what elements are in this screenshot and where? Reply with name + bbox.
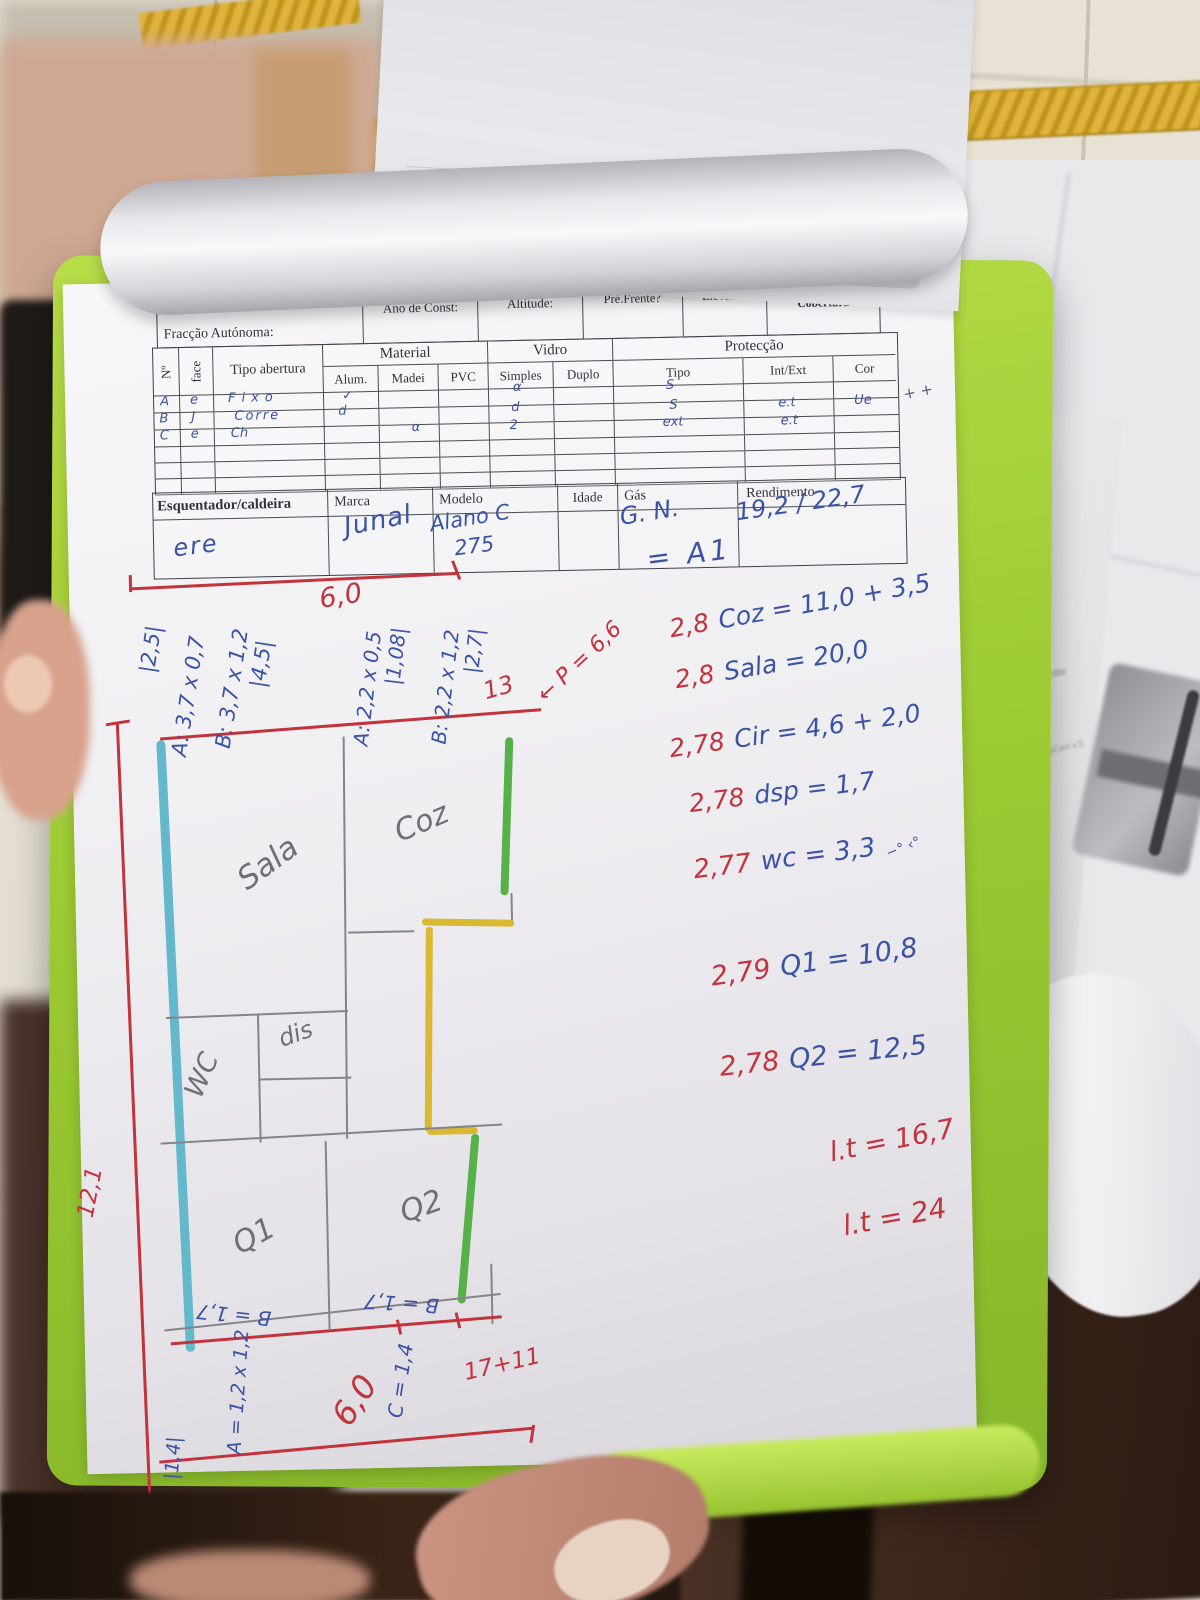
col-duplo: Duplo (553, 361, 614, 388)
room-label-coz: Coz (389, 796, 453, 850)
calc-line: 2,78Cir = 4,6 + 2,0 (667, 698, 922, 763)
pencil-line-dis-bottom (259, 1077, 351, 1081)
room-label-sala: Sala (231, 829, 306, 897)
plan-right-wall-green-upper (500, 737, 513, 895)
dim-note: A: 3,7 x 0,7 (167, 635, 209, 758)
pencil-line-coz-notch (348, 930, 414, 933)
calc-line: 2,78Q2 = 12,5 (718, 1030, 929, 1083)
heater-value-tipo: ere (172, 529, 221, 562)
finger-left (0, 600, 90, 820)
col-int-ext: Int/Ext (743, 356, 834, 384)
col-madei: Madei (378, 365, 439, 392)
dim-note: |2,5| (135, 624, 166, 675)
red-measure-bottom-2 (159, 1427, 533, 1463)
group-vidro: Vidro Simples Duplo (488, 339, 614, 390)
heater-col-idade: Idade (558, 484, 619, 511)
dim-width-bottom: 6,0 (324, 1367, 386, 1432)
room-label-q2: Q2 (395, 1183, 447, 1230)
red-measure-left (116, 723, 152, 1512)
col-tipo-abertura: Tipo abertura (213, 345, 324, 395)
photo-scene: ambos guardar MobileDecPropCert v.5 Ps. … (0, 0, 1200, 1600)
calc-line: 2,77wc = 3,3 −° ‹° (692, 827, 923, 885)
pencil-line-q-divider (325, 1141, 331, 1329)
plan-yellow-vertical (425, 927, 433, 1132)
heater-label: Esquentador/caldeira (153, 490, 329, 520)
total-line-1: l.t = 16,7 (827, 1113, 957, 1168)
calc-line: 2,79Q1 = 10,8 (709, 932, 920, 992)
col-tipo: Tipo (613, 358, 744, 387)
calc-line: 2,8Coz = 11,0 + 3,5 (667, 568, 933, 643)
plan-left-wall-cyan (156, 740, 195, 1352)
plan-right-wall-green-lower (457, 1134, 479, 1304)
wc-marks: −° ‹° (884, 834, 923, 862)
dim-note: |2,7| (459, 627, 488, 675)
note-sum-bottom: 17+11 (461, 1343, 543, 1386)
dim-c-bottom: C = 1,4 (383, 1341, 418, 1419)
col-face: face (179, 347, 214, 396)
dim-a-bottom-val: |1,4| (161, 1436, 186, 1480)
col-no: Nº (153, 348, 180, 397)
plan-yellow-horizontal (422, 918, 514, 926)
room-label-q1: Q1 (227, 1210, 281, 1261)
red-tick (396, 1320, 402, 1335)
dim-a-bottom: A = 1,2 x 1,2 (223, 1329, 253, 1455)
dim-b-q2: B = 1,7 (363, 1289, 439, 1318)
heater-value-modelo-2: 275 (453, 531, 496, 560)
form-paper: Ps. Wh. Orlaye Fracção Autónoma: Ano de … (63, 266, 978, 1474)
room-label-wc: WC (179, 1048, 226, 1102)
col-pvc: PVC (438, 364, 489, 391)
room-label-dis: dis (275, 1015, 317, 1053)
openings-table: Nº face Tipo abertura Material Alum. Mad… (152, 332, 901, 496)
red-tick (129, 575, 132, 592)
pencil-line-right-seg (510, 893, 513, 923)
group-proteccao: Protecção Tipo Int/Ext Cor (613, 333, 896, 387)
calc-line: 2,8Sala = 20,0 (673, 634, 871, 694)
note-thirteen: 13 (480, 670, 517, 705)
fingernail-left (4, 655, 52, 713)
group-material: Material Alum. Madei PVC (323, 342, 489, 393)
note-perimeter: ← P = 6,6 (532, 616, 626, 707)
dim-width-top: 6,0 (317, 577, 364, 614)
stray-marks: + + (902, 380, 935, 403)
thumb-bottom-left (130, 1550, 370, 1600)
total-line-2: l.t = 24 (840, 1191, 949, 1242)
dim-note: B: 2,2 x 1,2 (427, 628, 464, 745)
dim-note: A: 2,2 x 0,5 (349, 630, 386, 747)
calc-line: 2,78dsp = 1,7 (687, 766, 876, 818)
col-cor: Cor (833, 355, 896, 382)
